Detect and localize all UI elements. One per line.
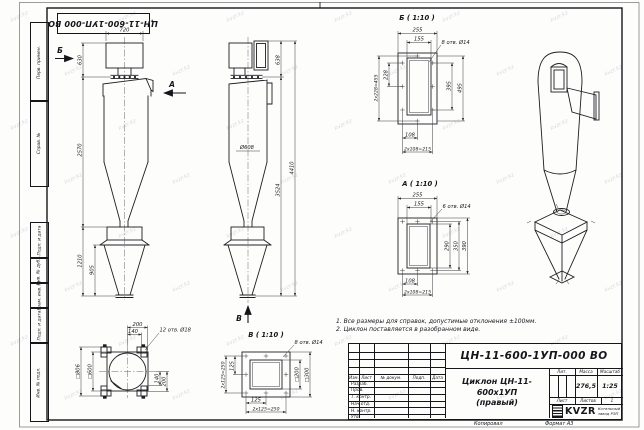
- dim-300-square: □300: [305, 367, 311, 383]
- tb-row-prov: Пров.: [349, 388, 376, 395]
- dim-2570: 2570: [78, 143, 84, 157]
- dim-155: 155: [414, 202, 425, 208]
- dim-350: 350: [454, 240, 460, 251]
- iso-view: [527, 52, 599, 284]
- frame-column-label: Инв. № подл.: [37, 367, 42, 397]
- frame-column-label: Справ. №: [37, 133, 42, 154]
- frame-column-label: Перв. примен.: [37, 46, 42, 79]
- dim-228: 228: [384, 69, 390, 80]
- dim-200-top: 200: [133, 322, 144, 328]
- view-letter-b: Б: [57, 46, 63, 55]
- holes-note-b: 8 отв. Ø14: [442, 39, 470, 46]
- dim-2x108: 2х108=215: [404, 290, 431, 296]
- dim-2x108: 2х108=215: [404, 147, 431, 153]
- dim-600-square: □600: [88, 363, 94, 379]
- frame-column-inv-podl: Инв. № подл.: [30, 342, 49, 422]
- tb-lit-label: Лит.: [549, 368, 575, 375]
- holes-note-v: 8 отв. Ø14: [295, 339, 323, 346]
- detail-view-b: Б ( 1:10 ) 255 155 228 2х228=455 395 495…: [374, 14, 470, 154]
- tb-scale-value: 1:25: [597, 375, 623, 397]
- detail-a-title: А ( 1:10 ): [401, 180, 437, 188]
- dim-d608: Ø608: [239, 144, 255, 151]
- bolt-hole-marks: [400, 219, 434, 272]
- inverted-doc-number-box: ЦН-11-600-1УП-000 ВО: [57, 13, 150, 34]
- dim-2x125-left: 2х125=250: [221, 361, 227, 388]
- company-name-line2: завод РЭП: [598, 412, 620, 417]
- bolt-hole-marks: [400, 54, 434, 123]
- company-logo-text: KVZR: [565, 406, 596, 417]
- view-direction-arrow-b: Б: [55, 46, 73, 59]
- top-view: 200 140 140 200 □600 □806 12 отв. Ø18: [76, 322, 192, 399]
- detail-view-a: А ( 1:10 ) 255 155 290 350 390 108 2х108…: [398, 180, 471, 297]
- dim-3524: 3524: [276, 183, 282, 196]
- drawing-sheet: kvzr.kzkvzr.kzkvzr.kzkvzr.kzkvzr.kzkvzr.…: [0, 0, 644, 430]
- tb-mass-value: 276,5: [575, 375, 597, 397]
- dim-638: 638: [276, 54, 282, 65]
- tb-product-name: Циклон ЦН-11-600х1УП (правый): [445, 368, 549, 418]
- dim-140-right: 140: [155, 373, 161, 384]
- flange-bolts: [113, 76, 136, 78]
- title-block: Изм. Лист № докум. Подп. Дата Разраб. Пр…: [348, 343, 622, 420]
- dim-630: 630: [78, 54, 84, 65]
- tb-sheets-value: 1: [601, 397, 623, 404]
- tb-row-tkontr: Т. контр.: [349, 394, 376, 401]
- tb-mass-label: Масса: [575, 368, 597, 375]
- note-line-1: 1. Все размеры для справок, допустимые о…: [336, 318, 621, 326]
- dim-200-right: 200: [162, 376, 168, 387]
- dim-2x125-bottom: 2х125=250: [252, 407, 279, 413]
- tb-row-utv: Утв.: [349, 415, 376, 422]
- company-logo-cell: KVZR Котельный завод РЭП: [549, 404, 623, 420]
- dim-155: 155: [414, 37, 425, 43]
- dim-395: 395: [447, 80, 453, 91]
- tb-header-podp: Подп.: [408, 374, 430, 381]
- tb-header-data: Дата: [430, 374, 445, 381]
- tb-scale-label: Масштаб: [597, 368, 623, 375]
- tb-header-ndocum: № докум.: [374, 374, 408, 381]
- dim-495: 495: [458, 82, 464, 93]
- frame-column-podp-data-2: Подп. и дата: [30, 307, 49, 344]
- front-view: [100, 37, 153, 300]
- frame-column-label: Подп. и дата: [37, 311, 42, 341]
- holes-note-top: 12 отв. Ø18: [160, 327, 192, 334]
- frame-column-podp-data-1: Подп. и дата: [30, 222, 49, 259]
- dim-255: 255: [413, 193, 424, 199]
- detail-b-title: Б ( 1:10 ): [399, 14, 434, 22]
- note-line-2: 2. Циклон поставляется в разобранном вид…: [336, 326, 621, 334]
- dim-125-bottom: 125: [251, 398, 262, 404]
- tb-sheets-label: Листов: [575, 397, 601, 404]
- dim-1210: 1210: [78, 254, 84, 268]
- tb-row-nkontr: Н. контр.: [349, 408, 376, 415]
- dim-140-top: 140: [128, 329, 139, 335]
- tb-doc-number: ЦН-11-600-1УП-000 ВО: [445, 344, 623, 368]
- frame-column-perv-primen: Перв. примен.: [30, 22, 49, 102]
- inverted-doc-number: ЦН-11-600-1УП-000 ВО: [48, 19, 158, 28]
- frame-column-label: Подп. и дата: [37, 226, 42, 256]
- dim-108: 108: [405, 133, 416, 139]
- flange-bolts: [233, 76, 259, 78]
- dim-4410: 4410: [290, 161, 296, 175]
- tb-product-name-line2: (правый): [476, 398, 518, 409]
- frame-column-label: Взам. инв. №: [37, 281, 42, 311]
- detail-view-v: В ( 1:10 ) 125 2х125=250 □200 □300 125 2…: [221, 331, 323, 414]
- tb-product-name-line1: Циклон ЦН-11-600х1УП: [445, 377, 549, 399]
- detail-v-title: В ( 1:10 ): [248, 331, 283, 339]
- company-emblem-icon: [552, 405, 563, 418]
- dim-255: 255: [413, 28, 424, 34]
- tb-row-razrab: Разраб.: [349, 381, 376, 388]
- dim-108: 108: [405, 279, 416, 285]
- dim-200-square: □200: [295, 366, 301, 382]
- tb-header-izm: Изм.: [349, 374, 359, 381]
- copied-label: Копировал: [474, 421, 503, 427]
- frame-column-vzam-inv: Взам. инв. №: [30, 282, 49, 309]
- dim-290: 290: [445, 240, 451, 251]
- format-label: Формат А3: [545, 421, 573, 427]
- dim-390: 390: [462, 240, 468, 251]
- outlet-pipe: [551, 64, 567, 68]
- view-direction-arrow-v: В: [236, 306, 248, 323]
- inlet-scroll: [103, 79, 153, 97]
- tb-sheet-label: Лист: [549, 397, 575, 404]
- technical-notes: 1. Все размеры для справок, допустимые о…: [336, 318, 621, 335]
- view-direction-arrow-a: А: [164, 80, 186, 93]
- holes-note-a: 6 отв. Ø14: [443, 203, 471, 210]
- frame-column-sprav-no: Справ. №: [30, 100, 49, 187]
- dim-125-left: 125: [230, 360, 236, 371]
- dim-905: 905: [90, 264, 96, 275]
- dim-806-square: □806: [76, 363, 82, 379]
- tb-row-nachotd: Нач.отд.: [349, 401, 376, 408]
- view-letter-a: А: [168, 80, 175, 89]
- dim-2x228: 2х228=455: [374, 74, 380, 101]
- company-name: Котельный завод РЭП: [598, 407, 620, 416]
- tb-header-list: Лист: [359, 374, 374, 381]
- view-letter-v: В: [236, 314, 242, 323]
